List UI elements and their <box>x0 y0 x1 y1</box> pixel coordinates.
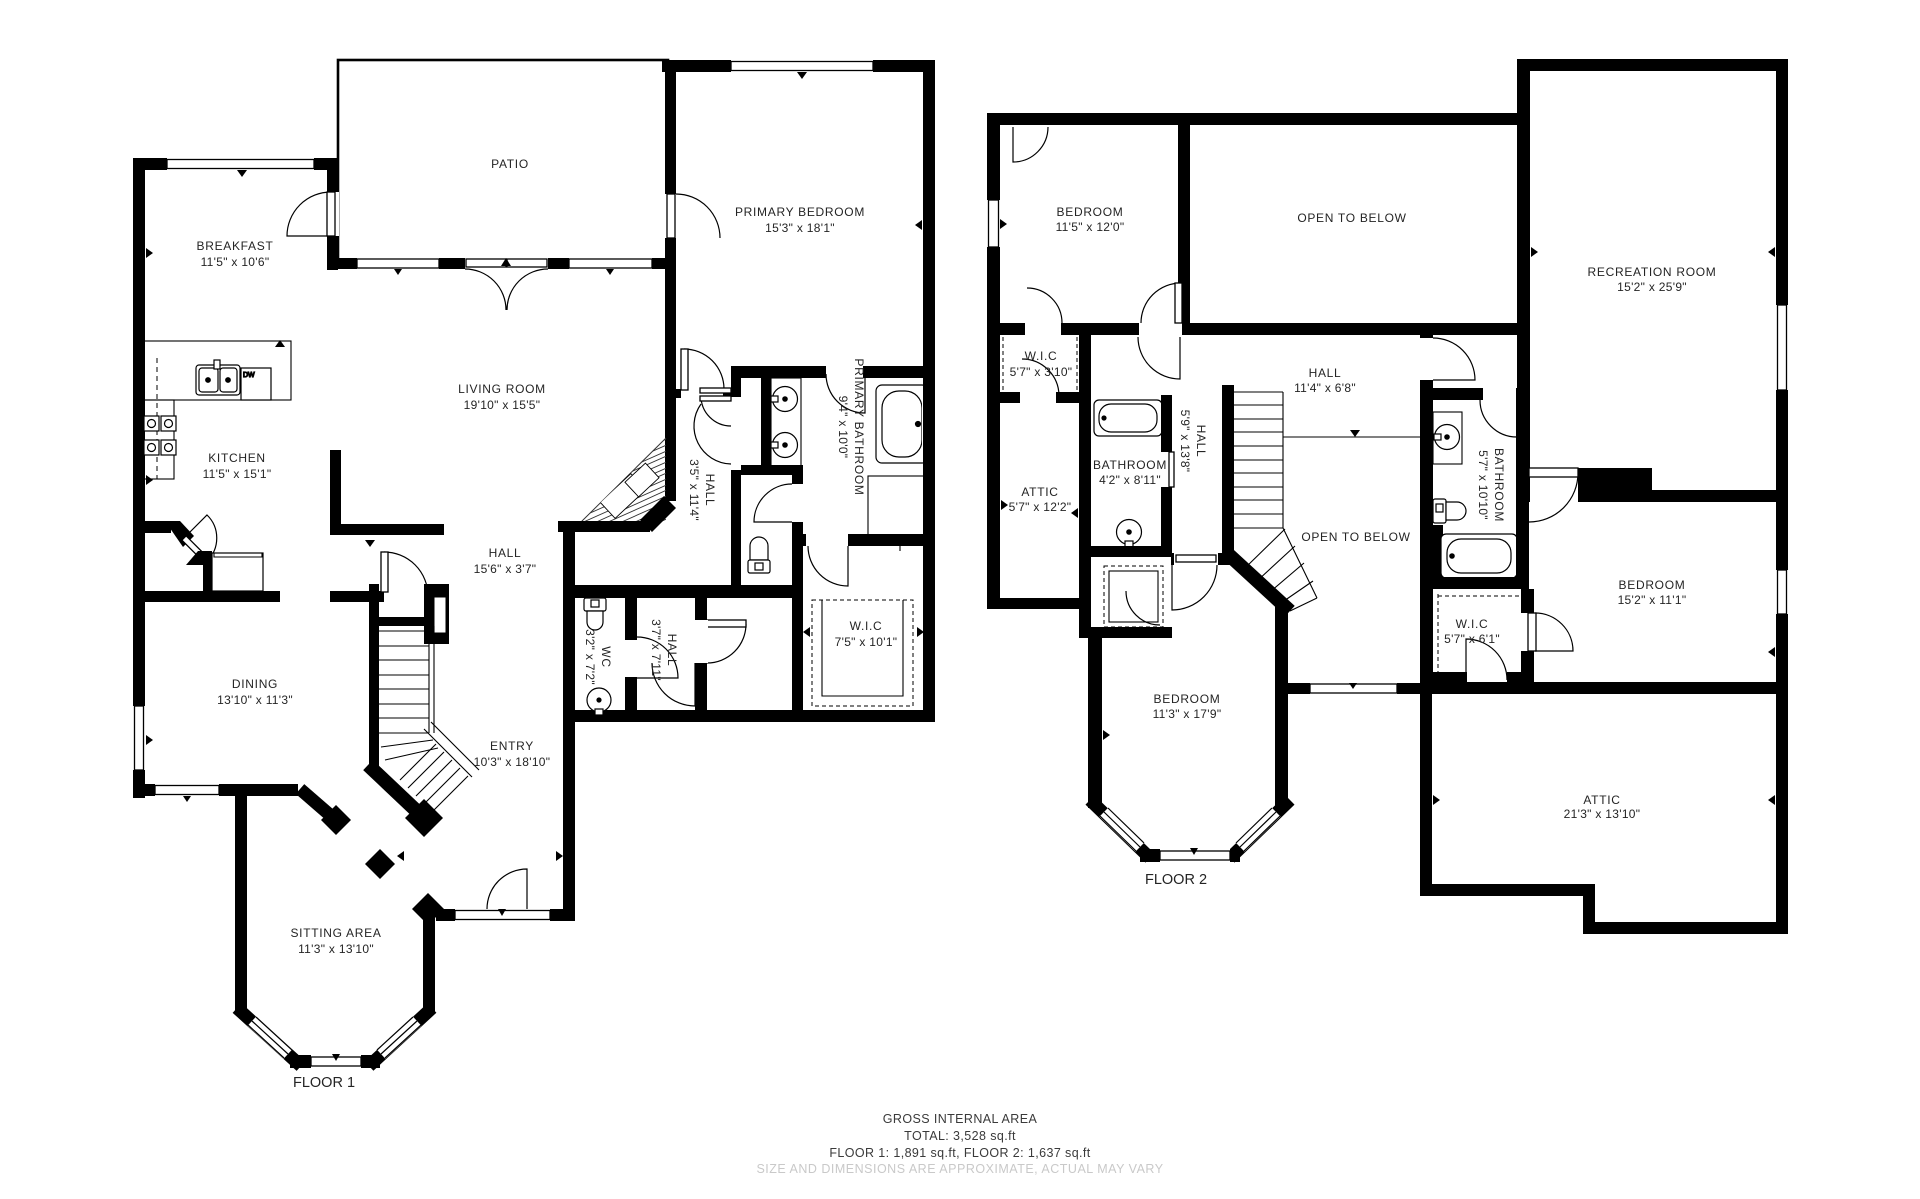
svg-text:PRIMARY BEDROOM: PRIMARY BEDROOM <box>735 205 865 219</box>
svg-text:15'3" x 18'1": 15'3" x 18'1" <box>765 221 835 235</box>
svg-text:5'7" x 6'1": 5'7" x 6'1" <box>1444 632 1500 646</box>
svg-text:BATHROOM: BATHROOM <box>1492 448 1506 522</box>
svg-text:W.I.C: W.I.C <box>1025 349 1058 363</box>
svg-text:9'4" x 10'0": 9'4" x 10'0" <box>836 396 850 459</box>
svg-text:5'7" x 12'2": 5'7" x 12'2" <box>1009 500 1072 514</box>
svg-text:11'5" x 15'1": 11'5" x 15'1" <box>203 467 272 481</box>
svg-text:21'3" x 13'10": 21'3" x 13'10" <box>1564 807 1641 821</box>
svg-text:11'5" x 10'6": 11'5" x 10'6" <box>201 255 270 269</box>
svg-text:BEDROOM: BEDROOM <box>1154 692 1221 706</box>
svg-text:OPEN TO BELOW: OPEN TO BELOW <box>1301 530 1410 544</box>
svg-text:15'2" x 25'9": 15'2" x 25'9" <box>1617 280 1687 294</box>
svg-text:10'3" x 18'10": 10'3" x 18'10" <box>474 755 551 769</box>
svg-text:SIZE AND DIMENSIONS ARE APPROX: SIZE AND DIMENSIONS ARE APPROXIMATE, ACT… <box>756 1162 1163 1176</box>
svg-text:ENTRY: ENTRY <box>490 739 534 753</box>
svg-text:DW: DW <box>243 372 255 379</box>
svg-text:3'2" x 7'2": 3'2" x 7'2" <box>583 629 597 685</box>
svg-text:15'2" x 11'1": 15'2" x 11'1" <box>1618 593 1687 607</box>
svg-text:11'3" x 13'10": 11'3" x 13'10" <box>298 942 374 956</box>
svg-text:WC: WC <box>599 646 613 667</box>
svg-text:3'5" x 11'4": 3'5" x 11'4" <box>687 459 701 521</box>
svg-text:7'5" x 10'1": 7'5" x 10'1" <box>835 635 898 649</box>
svg-text:11'5" x 12'0": 11'5" x 12'0" <box>1056 220 1125 234</box>
svg-text:HALL: HALL <box>1309 366 1342 380</box>
svg-text:HALL: HALL <box>1194 425 1208 458</box>
svg-text:HALL: HALL <box>703 474 717 507</box>
svg-text:TOTAL: 3,528 sq.ft: TOTAL: 3,528 sq.ft <box>904 1129 1016 1143</box>
svg-text:11'3" x 17'9": 11'3" x 17'9" <box>1153 707 1222 721</box>
svg-text:PRIMARY BATHROOM: PRIMARY BATHROOM <box>852 358 866 495</box>
svg-text:5'9" x 13'8": 5'9" x 13'8" <box>1178 410 1192 473</box>
svg-text:FLOOR 1: FLOOR 1 <box>293 1075 355 1091</box>
svg-text:BEDROOM: BEDROOM <box>1619 578 1686 592</box>
svg-text:ATTIC: ATTIC <box>1583 793 1620 807</box>
svg-text:HALL: HALL <box>665 634 679 667</box>
svg-text:15'6" x 3'7": 15'6" x 3'7" <box>474 562 537 576</box>
svg-text:3'7" x 7'11": 3'7" x 7'11" <box>649 619 663 681</box>
svg-text:HALL: HALL <box>489 546 522 560</box>
svg-text:KITCHEN: KITCHEN <box>208 451 266 465</box>
svg-text:LIVING ROOM: LIVING ROOM <box>458 382 546 396</box>
svg-text:19'10" x 15'5": 19'10" x 15'5" <box>464 398 541 412</box>
svg-text:BATHROOM: BATHROOM <box>1093 458 1167 472</box>
svg-text:5'7" x 3'10": 5'7" x 3'10" <box>1010 365 1073 379</box>
svg-text:11'4" x 6'8": 11'4" x 6'8" <box>1294 381 1356 395</box>
svg-text:FLOOR 1: 1,891 sq.ft, FLOOR 2:: FLOOR 1: 1,891 sq.ft, FLOOR 2: 1,637 sq.… <box>829 1146 1090 1160</box>
svg-text:4'2" x 8'11": 4'2" x 8'11" <box>1099 473 1161 487</box>
svg-text:BREAKFAST: BREAKFAST <box>197 239 274 253</box>
svg-text:5'7" x 10'10": 5'7" x 10'10" <box>1476 450 1490 520</box>
svg-text:13'10" x 11'3": 13'10" x 11'3" <box>217 693 293 707</box>
svg-text:GROSS INTERNAL AREA: GROSS INTERNAL AREA <box>883 1112 1038 1126</box>
svg-text:OPEN TO BELOW: OPEN TO BELOW <box>1297 211 1406 225</box>
svg-text:RECREATION ROOM: RECREATION ROOM <box>1588 265 1717 279</box>
svg-text:DINING: DINING <box>232 677 278 691</box>
svg-text:SITTING AREA: SITTING AREA <box>290 926 381 940</box>
svg-text:PATIO: PATIO <box>491 157 529 171</box>
svg-text:W.I.C: W.I.C <box>850 619 883 633</box>
svg-text:ATTIC: ATTIC <box>1021 485 1058 499</box>
svg-text:BEDROOM: BEDROOM <box>1057 205 1124 219</box>
svg-text:W.I.C: W.I.C <box>1456 617 1489 631</box>
svg-text:FLOOR 2: FLOOR 2 <box>1145 872 1207 888</box>
